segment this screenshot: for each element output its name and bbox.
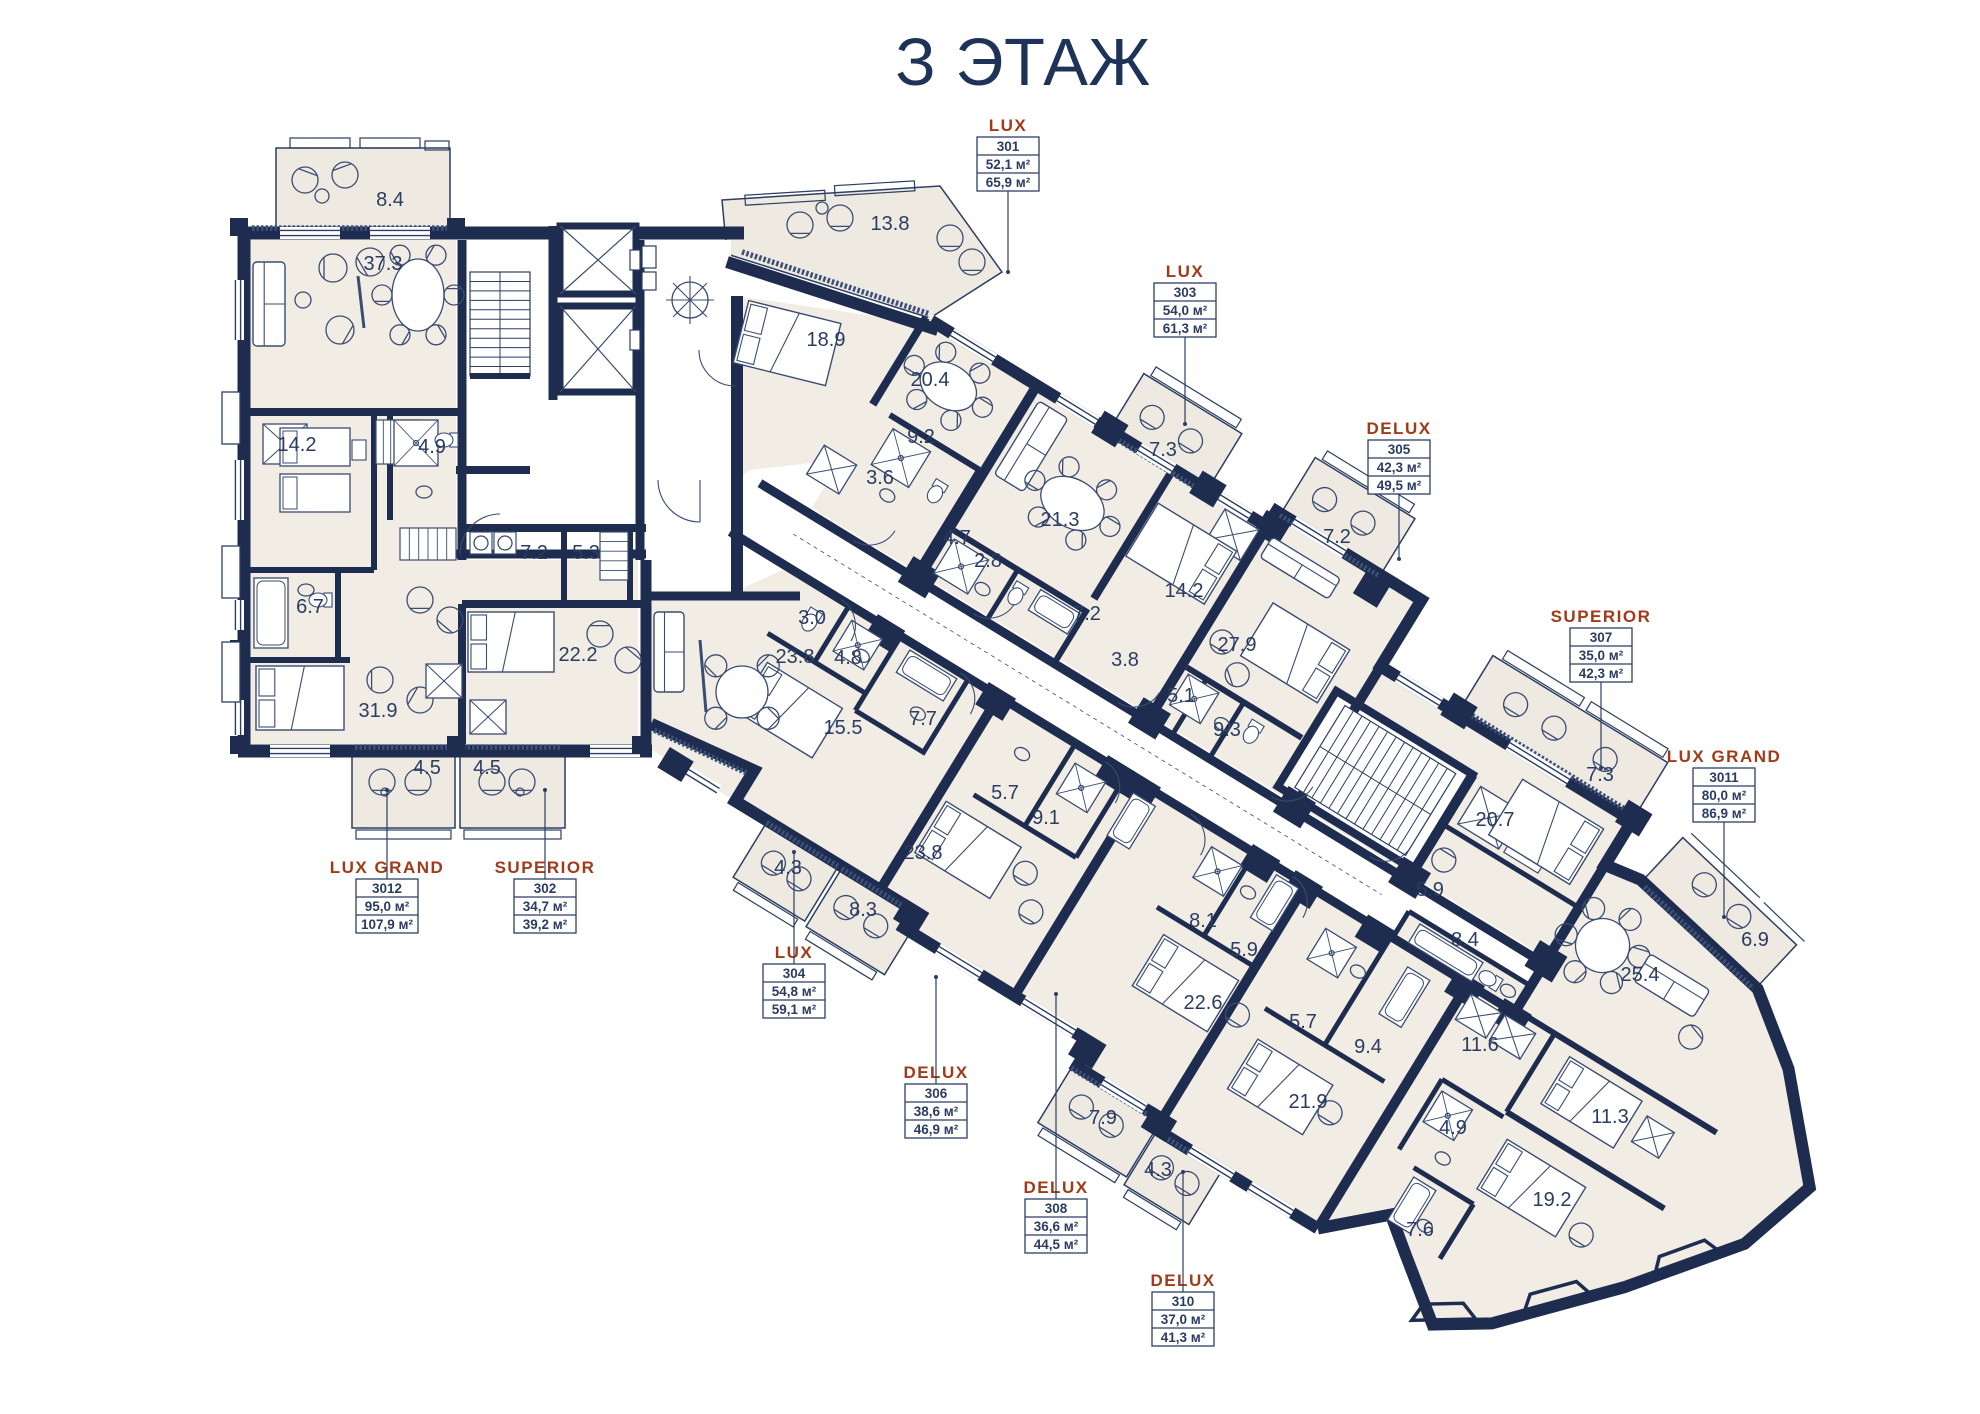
svg-text:307: 307 [1590, 630, 1613, 645]
svg-text:4.7: 4.7 [943, 527, 971, 549]
svg-text:302: 302 [534, 881, 557, 896]
svg-text:LUX GRAND: LUX GRAND [1667, 747, 1782, 766]
svg-text:5.9: 5.9 [1416, 879, 1444, 901]
svg-text:36,6 м²: 36,6 м² [1034, 1219, 1079, 1234]
svg-text:107,9 м²: 107,9 м² [361, 917, 414, 932]
svg-text:54,0 м²: 54,0 м² [1163, 303, 1208, 318]
svg-text:3.8: 3.8 [1111, 649, 1139, 671]
svg-text:22.6: 22.6 [1184, 992, 1223, 1014]
svg-text:86,9 м²: 86,9 м² [1702, 806, 1747, 821]
svg-text:4.5: 4.5 [473, 757, 501, 779]
svg-text:23.8: 23.8 [904, 842, 943, 864]
svg-text:3.6: 3.6 [866, 467, 894, 489]
svg-text:31.9: 31.9 [359, 700, 398, 722]
svg-text:95,0 м²: 95,0 м² [365, 899, 410, 914]
svg-text:LUX: LUX [1166, 262, 1205, 281]
svg-text:35,0 м²: 35,0 м² [1579, 648, 1624, 663]
svg-text:5.3: 5.3 [572, 542, 600, 564]
svg-text:21.3: 21.3 [1041, 509, 1080, 531]
svg-text:42,3 м²: 42,3 м² [1579, 666, 1624, 681]
svg-text:7.2: 7.2 [520, 542, 548, 564]
svg-text:5.1: 5.1 [1167, 685, 1195, 707]
svg-text:38,6 м²: 38,6 м² [914, 1104, 959, 1119]
svg-text:22.2: 22.2 [559, 644, 598, 666]
svg-text:DELUX: DELUX [1366, 419, 1431, 438]
svg-text:15.5: 15.5 [824, 717, 863, 739]
svg-text:7.2: 7.2 [1073, 603, 1101, 625]
svg-text:41,3 м²: 41,3 м² [1161, 1330, 1206, 1345]
svg-text:7.3: 7.3 [1149, 439, 1177, 461]
svg-text:304: 304 [783, 966, 806, 981]
svg-text:80,0 м²: 80,0 м² [1702, 788, 1747, 803]
svg-text:4.5: 4.5 [413, 757, 441, 779]
svg-text:4.3: 4.3 [774, 857, 802, 879]
svg-text:11.6: 11.6 [1461, 1034, 1498, 1056]
svg-text:3011: 3011 [1709, 770, 1739, 785]
svg-text:14.2: 14.2 [278, 434, 317, 456]
svg-text:44,5 м²: 44,5 м² [1034, 1237, 1079, 1252]
svg-text:19.2: 19.2 [1533, 1189, 1572, 1211]
svg-text:65,9 м²: 65,9 м² [986, 175, 1031, 190]
svg-text:8.1: 8.1 [1189, 910, 1217, 932]
svg-text:2.8: 2.8 [974, 550, 1002, 572]
svg-text:4.9: 4.9 [1439, 1117, 1467, 1139]
svg-text:34,7 м²: 34,7 м² [523, 899, 568, 914]
svg-text:39,2 м²: 39,2 м² [523, 917, 568, 932]
svg-text:3012: 3012 [372, 881, 402, 896]
svg-text:8.4: 8.4 [1451, 929, 1479, 951]
svg-text:20.7: 20.7 [1476, 809, 1515, 831]
svg-text:37.3: 37.3 [364, 253, 403, 275]
svg-text:59,1 м²: 59,1 м² [772, 1002, 817, 1017]
svg-text:4.3: 4.3 [1144, 1159, 1172, 1181]
svg-text:49,5 м²: 49,5 м² [1377, 478, 1422, 493]
svg-text:9.2: 9.2 [907, 426, 935, 448]
svg-text:42,3 м²: 42,3 м² [1377, 460, 1422, 475]
svg-text:11.3: 11.3 [1591, 1106, 1628, 1128]
svg-text:310: 310 [1172, 1294, 1195, 1309]
svg-text:27.9: 27.9 [1218, 634, 1257, 656]
svg-text:14.2: 14.2 [1165, 580, 1204, 602]
svg-text:18.9: 18.9 [807, 329, 846, 351]
svg-text:6.7: 6.7 [296, 596, 324, 618]
svg-text:7.9: 7.9 [1089, 1107, 1117, 1129]
svg-text:7.2: 7.2 [1323, 526, 1351, 548]
svg-text:7.3: 7.3 [1586, 764, 1614, 786]
svg-text:61,3 м²: 61,3 м² [1163, 321, 1208, 336]
svg-text:SUPERIOR: SUPERIOR [1551, 607, 1652, 626]
svg-text:305: 305 [1388, 442, 1411, 457]
svg-text:9.1: 9.1 [1032, 807, 1060, 829]
svg-text:З ЭТАЖ: З ЭТАЖ [895, 25, 1151, 100]
svg-text:303: 303 [1174, 285, 1197, 300]
svg-text:3.0: 3.0 [798, 607, 826, 629]
svg-text:9.4: 9.4 [1354, 1036, 1382, 1058]
svg-text:7.6: 7.6 [1406, 1219, 1434, 1241]
svg-text:LUX: LUX [989, 116, 1028, 135]
svg-text:54,8 м²: 54,8 м² [772, 984, 817, 999]
svg-text:46,9 м²: 46,9 м² [914, 1122, 959, 1137]
svg-text:8.4: 8.4 [376, 189, 404, 211]
svg-text:20.4: 20.4 [911, 369, 950, 391]
svg-text:4.8: 4.8 [834, 647, 862, 669]
svg-text:5.7: 5.7 [991, 782, 1019, 804]
svg-text:306: 306 [925, 1086, 948, 1101]
svg-text:13.8: 13.8 [871, 213, 910, 235]
svg-text:5.9: 5.9 [1230, 939, 1258, 961]
svg-text:4.9: 4.9 [418, 436, 446, 458]
svg-text:5.7: 5.7 [1289, 1011, 1317, 1033]
svg-text:37,0 м²: 37,0 м² [1161, 1312, 1206, 1327]
svg-text:23.8: 23.8 [776, 646, 815, 668]
svg-text:6.9: 6.9 [1741, 929, 1769, 951]
svg-text:25.4: 25.4 [1621, 964, 1660, 986]
svg-text:308: 308 [1045, 1201, 1068, 1216]
svg-text:7.7: 7.7 [909, 708, 937, 730]
svg-text:301: 301 [997, 139, 1020, 154]
svg-text:9.3: 9.3 [1213, 719, 1241, 741]
svg-text:21.9: 21.9 [1289, 1091, 1328, 1113]
svg-text:8.3: 8.3 [849, 899, 877, 921]
svg-text:52,1 м²: 52,1 м² [986, 157, 1031, 172]
